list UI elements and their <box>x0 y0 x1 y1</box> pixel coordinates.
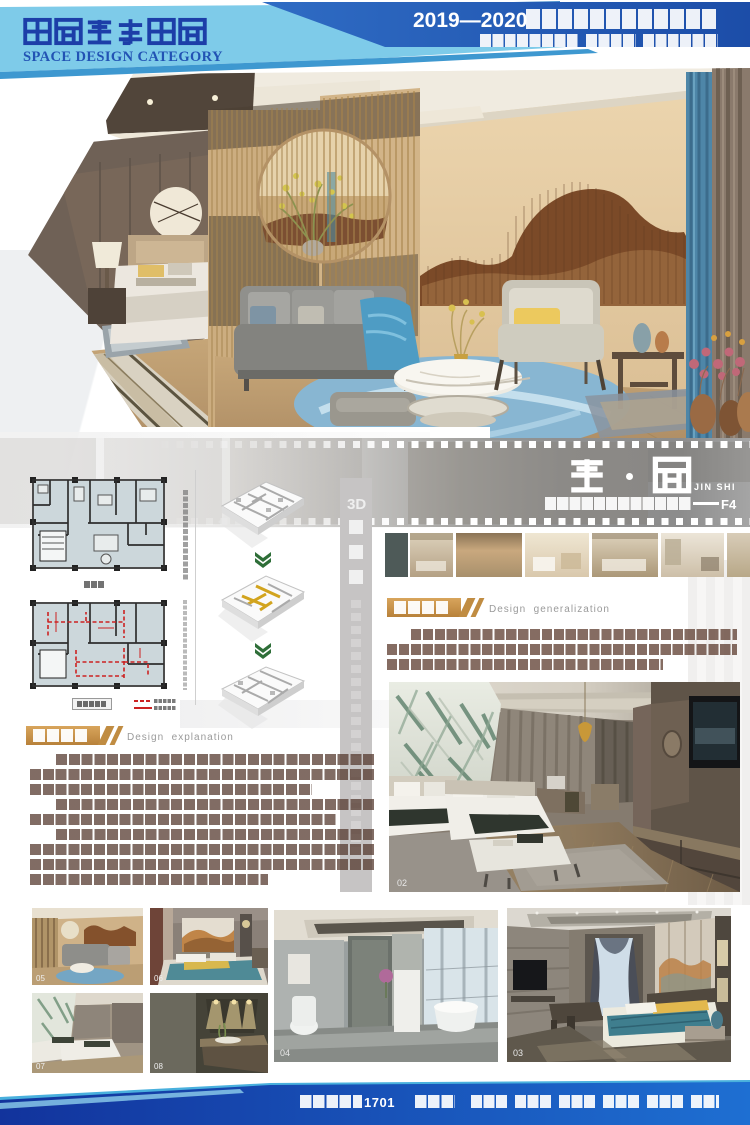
svg-text:04: 04 <box>280 1048 290 1058</box>
svg-text:03: 03 <box>513 1048 523 1058</box>
svg-text:05: 05 <box>36 974 45 983</box>
svg-text:02: 02 <box>397 878 407 888</box>
svg-text:06: 06 <box>154 974 163 983</box>
